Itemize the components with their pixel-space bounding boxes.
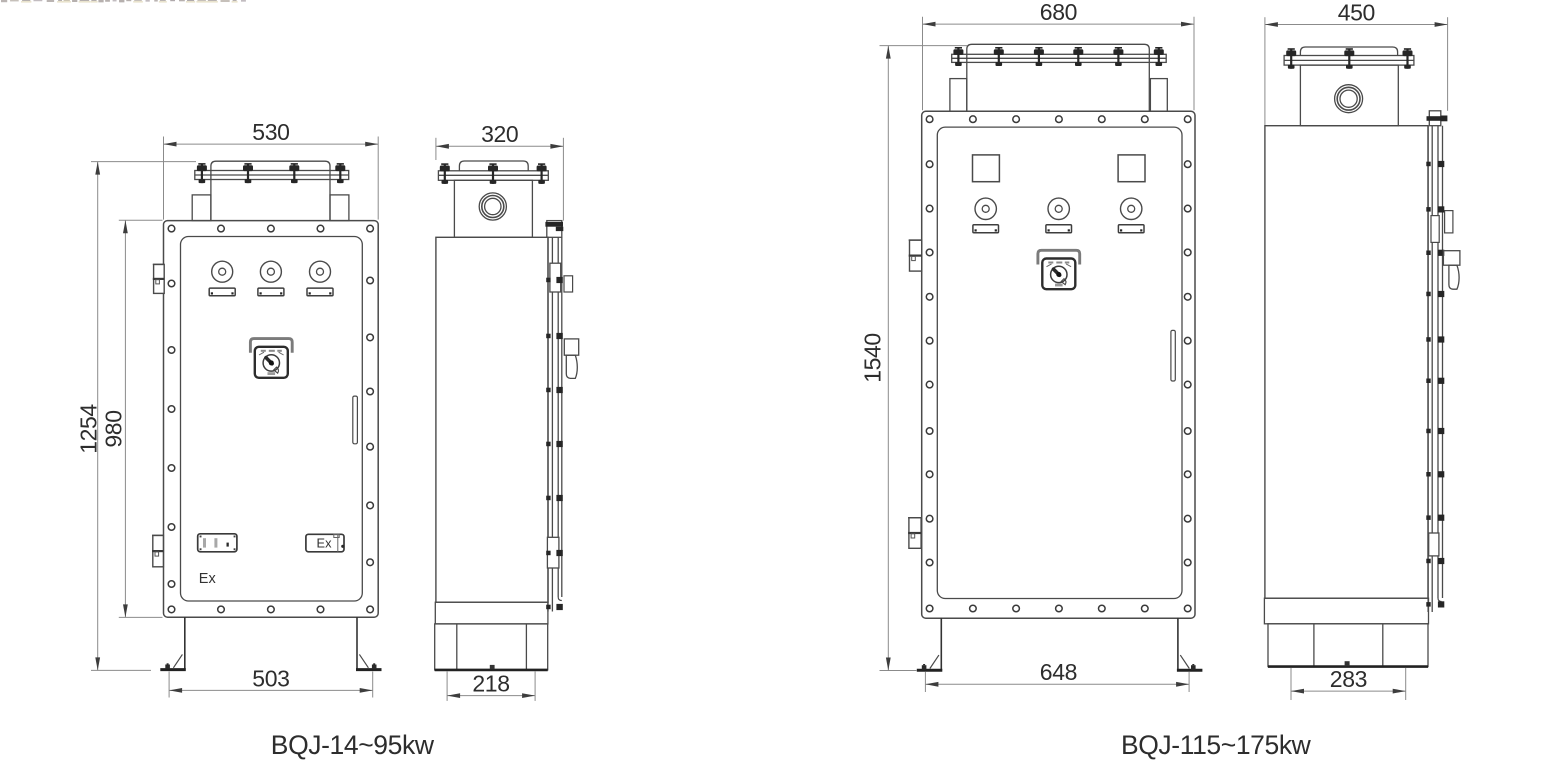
svg-text:Ex: Ex xyxy=(317,535,333,550)
svg-text:1254: 1254 xyxy=(76,404,102,454)
svg-text:BQJ-14~95kw: BQJ-14~95kw xyxy=(271,730,435,760)
svg-text:530: 530 xyxy=(252,119,289,145)
svg-text:503: 503 xyxy=(252,665,289,691)
svg-text:283: 283 xyxy=(1330,666,1367,692)
svg-text:BQJ-115~175kw: BQJ-115~175kw xyxy=(1121,730,1312,760)
svg-text:Ex: Ex xyxy=(199,571,217,587)
svg-text:980: 980 xyxy=(101,410,127,447)
svg-text:1540: 1540 xyxy=(860,333,886,383)
svg-text:680: 680 xyxy=(1040,0,1077,25)
svg-text:218: 218 xyxy=(472,671,509,697)
svg-text:450: 450 xyxy=(1338,0,1375,25)
svg-text:320: 320 xyxy=(481,121,518,147)
svg-text:648: 648 xyxy=(1040,659,1077,685)
